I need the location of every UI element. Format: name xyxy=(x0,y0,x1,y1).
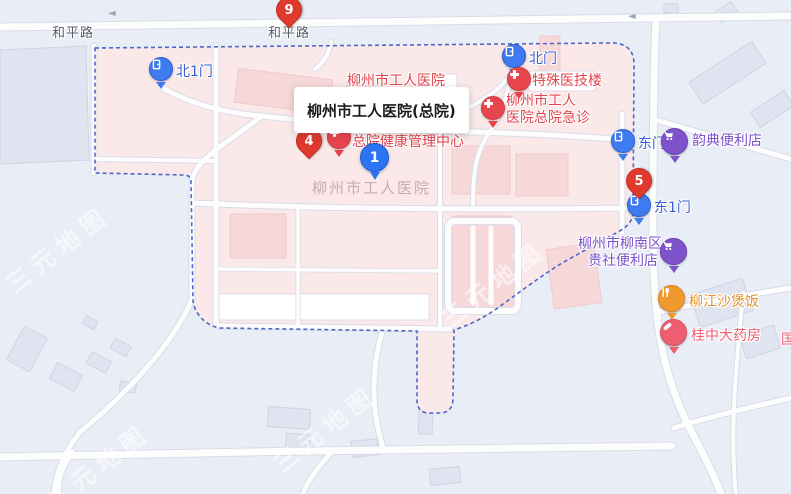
guishe-store-marker[interactable] xyxy=(660,238,687,265)
poi-label-liujiang[interactable]: 柳江沙煲饭 xyxy=(689,291,759,311)
gate-door-icon xyxy=(150,58,163,71)
gate-marker-east[interactable] xyxy=(611,129,635,153)
pharmacy-marker[interactable] xyxy=(660,319,687,346)
gate-marker-north1[interactable] xyxy=(149,57,173,81)
poi-label-special-building[interactable]: 特殊医技楼 xyxy=(532,73,602,90)
marker-number: 1 xyxy=(370,150,380,166)
liujiang-restaurant-marker[interactable] xyxy=(658,285,685,312)
gate-marker-north[interactable] xyxy=(502,44,526,68)
poi-label-edge-partial: 国 xyxy=(781,329,791,349)
gate-label-east1[interactable]: 东1门 xyxy=(654,197,691,217)
gate-door-icon xyxy=(612,130,625,143)
hospital-cross-icon xyxy=(482,97,495,110)
shop-cart-icon xyxy=(662,129,675,142)
emergency-marker[interactable] xyxy=(481,96,505,120)
gate-label-north[interactable]: 北门 xyxy=(529,48,557,68)
road-label-heping-left: 和平路 xyxy=(52,22,94,41)
pin-number: 4 xyxy=(304,134,313,149)
yundian-store-marker[interactable] xyxy=(661,128,688,155)
popup-title: 柳州市工人医院(总院) xyxy=(307,100,456,121)
shop-cart-icon xyxy=(661,239,674,252)
food-fork-knife-icon xyxy=(659,286,672,299)
special-building-marker[interactable] xyxy=(507,67,531,91)
poi-label-line: 医院总院急诊 xyxy=(506,110,590,127)
poi-label-guishe[interactable]: 柳州市柳南区 贵社便利店 xyxy=(578,236,658,270)
poi-label-pharmacy[interactable]: 桂中大药房 xyxy=(691,325,761,345)
poi-label-line: 贵社便利店 xyxy=(578,253,658,270)
pin-number: 9 xyxy=(284,3,293,18)
gate-door-icon xyxy=(503,45,516,58)
road-direction-arrow-icon: ◄ xyxy=(628,11,636,22)
poi-label-line: 柳州市柳南区 xyxy=(578,236,658,253)
info-popup[interactable]: 柳州市工人医院(总院) xyxy=(294,87,469,133)
gate-label-north1[interactable]: 北1门 xyxy=(176,61,213,81)
pin-number: 5 xyxy=(634,174,643,189)
poi-label-yundian[interactable]: 韵典便利店 xyxy=(692,133,762,150)
selected-location-marker-1[interactable]: 1 xyxy=(360,143,389,172)
pill-capsule-icon xyxy=(661,320,674,333)
road-direction-arrow-icon: ◄ xyxy=(108,8,116,19)
campus-area-label: 柳州市工人医院 xyxy=(312,177,431,198)
hospital-cross-icon xyxy=(508,68,521,81)
map-canvas[interactable]: 三元地图 三元地图 三元地图 三元地图 和平路 和平路 ◄ ◄ 柳州市工人医院 … xyxy=(0,0,791,494)
